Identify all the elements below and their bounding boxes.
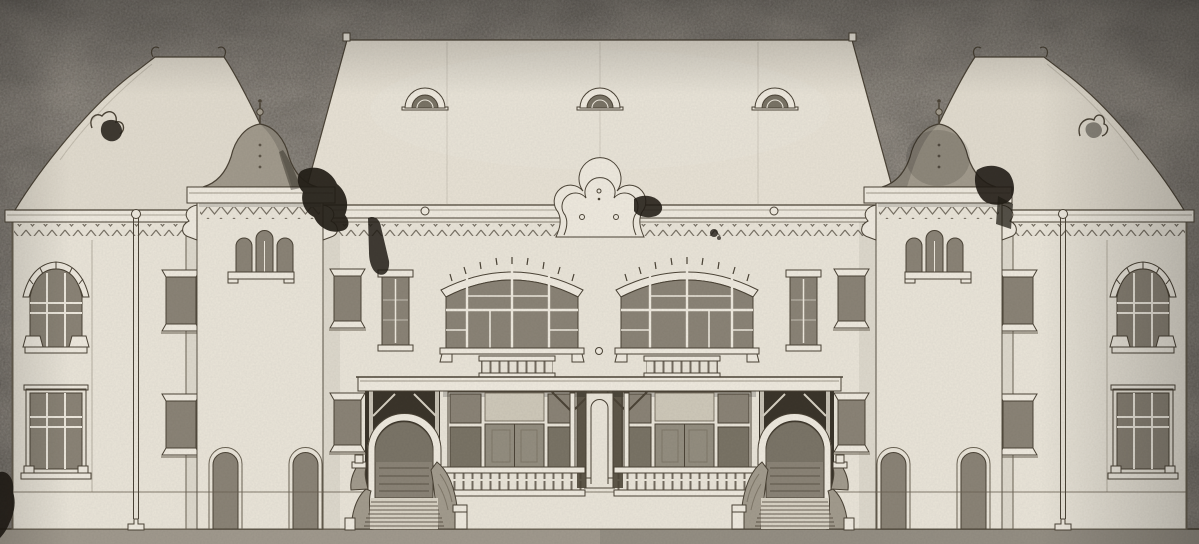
scan-vignette <box>0 0 1199 544</box>
scanned-drawing-root <box>0 0 1199 544</box>
building-elevation-drawing <box>0 0 1199 544</box>
